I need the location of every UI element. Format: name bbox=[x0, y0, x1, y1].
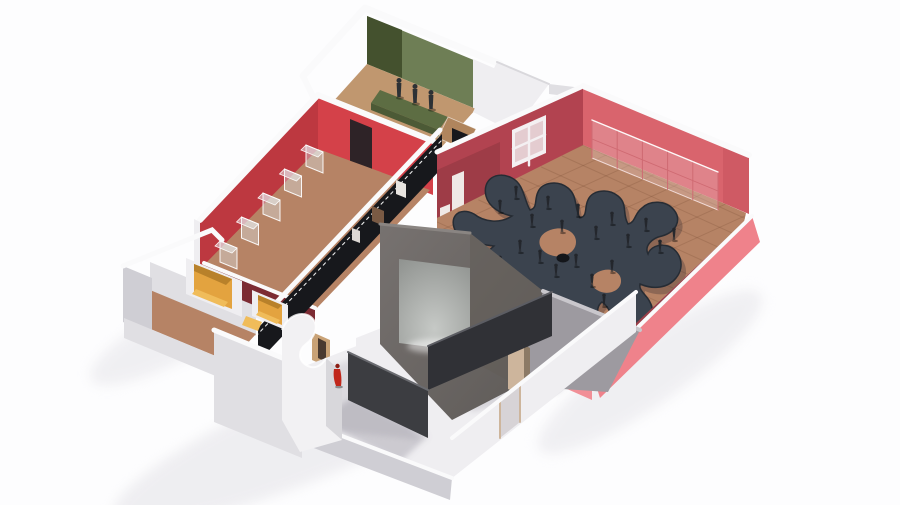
floorplan-render-container bbox=[0, 0, 900, 505]
floorplan-render bbox=[0, 0, 900, 505]
